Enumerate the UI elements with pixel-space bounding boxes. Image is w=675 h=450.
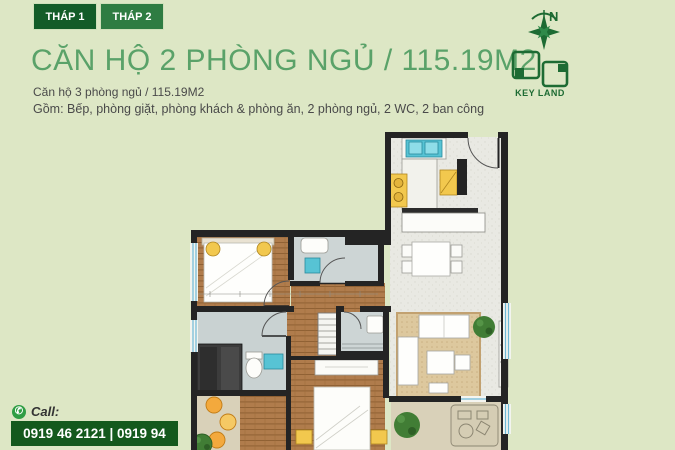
phone-icon: ✆	[12, 405, 26, 419]
sink	[367, 316, 383, 333]
laundry-sink	[264, 354, 283, 369]
toilet	[246, 358, 262, 378]
toilet	[301, 238, 328, 253]
call-row: ✆ Call:	[12, 404, 59, 419]
pillow	[206, 242, 220, 256]
counter-bar	[402, 213, 485, 232]
floor-plan	[0, 0, 675, 450]
nightstand	[371, 430, 387, 444]
pillow	[257, 242, 271, 256]
bath-sink	[305, 258, 320, 273]
bedroom2-floor-ext	[240, 395, 291, 450]
nightstand	[296, 430, 312, 444]
call-label: Call:	[31, 404, 59, 419]
bed2	[314, 387, 370, 450]
bedroom1-furniture	[202, 238, 274, 302]
stool	[220, 414, 236, 430]
counter-bar-edge	[402, 208, 478, 213]
stool	[206, 397, 222, 413]
plant	[473, 316, 495, 338]
dining-table	[412, 242, 450, 276]
linen-closet	[318, 313, 337, 355]
dresser	[315, 360, 378, 375]
armchair	[398, 337, 418, 385]
plant	[394, 412, 420, 438]
phone-numbers[interactable]: 0919 46 2121 | 0919 94 2121	[11, 421, 178, 446]
page: THÁP 1 THÁP 2 CĂN HỘ 2 PHÒNG NGỦ / 115.1…	[0, 0, 675, 450]
coffee-table	[427, 351, 454, 374]
